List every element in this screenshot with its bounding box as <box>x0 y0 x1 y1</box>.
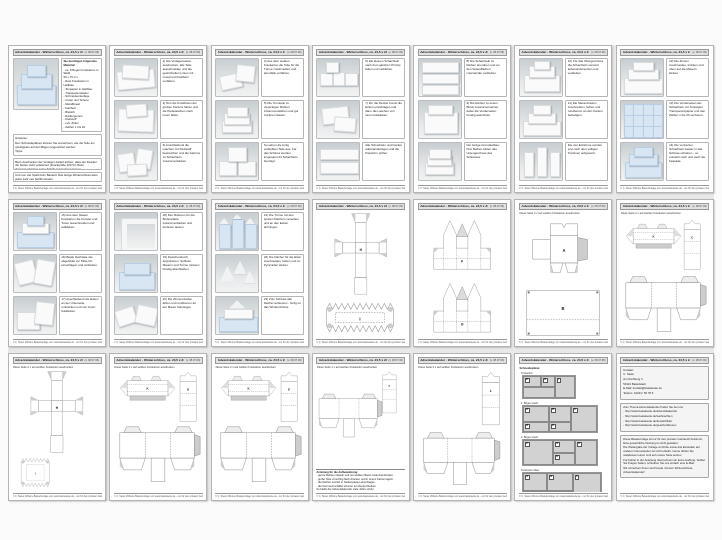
footer-left: © C. Steier 2006 <box>215 187 231 190</box>
page-header: Adventskalender - Winterschloss, ca. 24,… <box>316 49 405 57</box>
photo-towers <box>519 142 563 182</box>
page-header: Adventskalender - Winterschloss, ca. 24,… <box>13 357 102 365</box>
page-21: Adventskalender - Winterschloss, ca. 24,… <box>616 353 714 501</box>
piece-letter: D <box>525 424 530 429</box>
page-header: Adventskalender - Winterschloss, ca. 24,… <box>215 203 304 211</box>
piece-letter: D <box>555 455 560 460</box>
footer-left: © C. Steier 2006 <box>620 495 636 498</box>
step-row: 10) Für das Obergeschoss die Schachteln … <box>519 58 608 98</box>
paper-piece <box>127 164 148 177</box>
page-title: Adventskalender - Winterschloss, ca. 24,… <box>623 50 691 54</box>
page-header-right: (v. 08.07.06) <box>389 205 403 208</box>
page-body: 12) Die Zinnen zuschneiden, knicken und … <box>620 58 709 184</box>
step-text: 6) Die kleinen Schachteln nach dem gleic… <box>362 58 405 98</box>
paper-piece <box>232 214 242 219</box>
template-drawing: H I <box>13 370 102 491</box>
footer-left: © C. Steier 2006 <box>13 495 29 498</box>
step-row: 21) Die Türme mit den spitzen Dächern ve… <box>215 212 304 252</box>
step-text: Die vier Ecktürme werden erst nach dem v… <box>565 142 608 182</box>
footer-left: © C. Steier 2006 <box>519 495 535 498</box>
step-row: 23) Zum Schluss alle Dächer aufsetzen - … <box>215 296 304 336</box>
step-row: Die vier Ecktürme werden erst nach dem v… <box>519 142 608 182</box>
cutting-plan-piece: B <box>549 406 571 422</box>
footer-right: eine Bastelvorlage von www.bastelseite.d… <box>231 187 304 190</box>
page-body: 6) Die kleinen Schachteln nach dem gleic… <box>316 58 405 184</box>
step-row: Alle Schachteln und Deckel aufeinanderle… <box>316 142 405 182</box>
photo-roofs <box>215 254 259 294</box>
page-title: Adventskalender - Winterschloss, ca. 24,… <box>521 50 589 54</box>
cutting-plan-piece: C <box>523 440 553 465</box>
page-footer: © C. Steier 2006eine Bastelvorlage von w… <box>215 493 304 498</box>
net-cross: H <box>30 372 82 453</box>
page-4: Adventskalender - Winterschloss, ca. 24,… <box>312 45 410 193</box>
step-row: 4) Aus dem weißen Fotokarton die Teile f… <box>215 58 304 98</box>
paper-piece <box>550 152 560 177</box>
step-text: 19) Zwischendurch anprobieren: Schloss, … <box>160 254 203 294</box>
step-text: 20) Die Zinnenstreifen falzen und rundhe… <box>160 296 203 336</box>
photo-stack2 <box>215 142 259 182</box>
storage-note: Anleitung für die Aufbewahrung:- ganze R… <box>316 469 405 492</box>
page-footer: © C. Steier 2006eine Bastelvorlage von w… <box>13 339 102 344</box>
paper-piece <box>238 161 256 177</box>
page-title: Adventskalender - Winterschloss, ca. 24,… <box>623 358 691 362</box>
step-row: Der fertige Grundaufbau: Drei Reihen bil… <box>418 142 507 182</box>
print-instruction: Diese Seite 2 x auf weißen Fotokarton au… <box>216 366 305 369</box>
cutting-plan-piece: E <box>549 422 571 432</box>
footer-right: eine Bastelvorlage von www.bastelseite.d… <box>535 187 608 190</box>
piece-letter: F <box>575 475 580 480</box>
page-body: 21) Die Türme mit den spitzen Dächern ve… <box>215 212 304 338</box>
page-footer: © C. Steier 2006eine Bastelvorlage von w… <box>114 493 203 498</box>
page-title: Adventskalender - Winterschloss, ca. 24,… <box>319 358 387 362</box>
paper-box-blue <box>643 104 653 115</box>
photo-flat <box>114 58 158 98</box>
page-header: Adventskalender - Winterschloss, ca. 24,… <box>620 49 709 57</box>
net-letter: F <box>461 259 463 263</box>
page-footer: © C. Steier 2006eine Bastelvorlage von w… <box>620 339 709 344</box>
net-roofstrip: K <box>221 376 276 400</box>
page-header-right: (v. 08.07.06) <box>287 205 301 208</box>
page-header: Adventskalender - Winterschloss, ca. 24,… <box>418 203 507 211</box>
footer-left: © C. Steier 2006 <box>519 341 535 344</box>
footer-left: © C. Steier 2006 <box>114 187 130 190</box>
paper-piece <box>33 258 56 286</box>
photo-boxes <box>316 58 360 98</box>
paper-piece <box>320 149 359 160</box>
page-body: Diese Seite 2 x auf weißen Fotokarton au… <box>620 212 709 338</box>
paper-piece <box>633 62 653 72</box>
paper-piece <box>537 147 547 177</box>
cutting-plan-group: 1. Bogen weiß:ABCDE <box>519 402 608 434</box>
page-header-right: (v. 08.07.06) <box>287 359 301 362</box>
info-line: Kontakt: <box>623 369 706 373</box>
paper-piece <box>424 112 458 134</box>
sheet-outline: CGKD <box>522 439 598 466</box>
print-instruction: Diese Seite 2 x auf weißen Fotokarton au… <box>418 366 507 369</box>
paper-piece <box>326 62 339 73</box>
paper-piece <box>320 162 359 174</box>
step-text: 11) Die Mauerstreifen zuschneiden, falze… <box>565 100 608 140</box>
photo-castle-blue2 <box>13 212 57 252</box>
footer-left: © C. Steier 2006 <box>620 187 636 190</box>
step-row: 20) Die Zinnenstreifen falzen und rundhe… <box>114 296 203 336</box>
page-2: Adventskalender - Winterschloss, ca. 24,… <box>109 45 207 193</box>
page-footer: © C. Steier 2006eine Bastelvorlage von w… <box>316 339 405 344</box>
paper-piece <box>345 73 358 86</box>
page-title: Adventskalender - Winterschloss, ca. 24,… <box>319 204 387 208</box>
footer-right: eine Bastelvorlage von www.bastelseite.d… <box>434 187 507 190</box>
step-row: 2) Nun die Knicklinien der großen Karton… <box>114 100 203 140</box>
photo-battlements <box>114 296 158 336</box>
photo-rows2 <box>418 58 462 98</box>
page-footer: © C. Steier 2006eine Bastelvorlage von w… <box>215 339 304 344</box>
step-row: So sehen die fertig verklebten Teile aus… <box>215 142 304 182</box>
footer-right: eine Bastelvorlage von www.bastelseite.d… <box>333 341 406 344</box>
page-body: Sie benötigen folgendes Material:- ca. 8… <box>13 58 102 184</box>
page-body: 4) Aus dem weißen Fotokarton die Teile f… <box>215 58 304 184</box>
template-drawing: A B <box>519 216 608 337</box>
paper-piece <box>219 218 228 224</box>
footer-right: eine Bastelvorlage von www.bastelseite.d… <box>130 341 203 344</box>
footer-right: eine Bastelvorlage von www.bastelseite.d… <box>333 187 406 190</box>
paper-piece <box>228 147 247 162</box>
footer-right: eine Bastelvorlage von www.bastelseite.d… <box>637 341 710 344</box>
paper-box-blue <box>643 115 653 126</box>
page-footer: © C. Steier 2006eine Bastelvorlage von w… <box>620 493 709 498</box>
footer-right: eine Bastelvorlage von www.bastelseite.d… <box>535 495 608 498</box>
page-header-right: (v. 08.07.06) <box>692 359 706 362</box>
cutting-plan-piece: C <box>571 406 597 432</box>
footer-left: © C. Steier 2006 <box>316 187 332 190</box>
page-header: Adventskalender - Winterschloss, ca. 24,… <box>519 49 608 57</box>
photo-flat2 <box>114 100 158 140</box>
cutting-plan-piece <box>523 387 555 398</box>
page-footer: © C. Steier 2006eine Bastelvorlage von w… <box>418 493 507 498</box>
step-text: 5) Die Turmteile zu viereckigen Röhren z… <box>261 100 304 140</box>
page-header: Adventskalender - Winterschloss, ca. 24,… <box>620 203 709 211</box>
page-body: Diese Seite 2 x auf weißen Fotokarton au… <box>13 366 102 492</box>
net-roofstrip: K <box>626 224 681 248</box>
paper-piece <box>27 65 47 77</box>
step-text: 8) Die Schachteln zu Reihen anordnen und… <box>464 58 507 98</box>
paper-piece <box>534 61 549 70</box>
net-tallbox: E <box>281 372 297 421</box>
net-letter: H <box>360 248 363 252</box>
paper-box-blue <box>653 115 663 126</box>
paper-piece <box>524 152 534 177</box>
print-instruction: Diese Seite 2 x auf weißen Fotokarton au… <box>13 366 102 369</box>
page-footer: © C. Steier 2006eine Bastelvorlage von w… <box>215 185 304 190</box>
page-title: Adventskalender - Winterschloss, ca. 24,… <box>218 50 286 54</box>
piece-letter: I <box>557 378 561 383</box>
page-title: Adventskalender - Winterschloss, ca. 24,… <box>319 50 387 54</box>
net-zigsquare: I <box>21 459 49 487</box>
piece-letter: A <box>525 475 530 480</box>
footer-left: © C. Steier 2006 <box>418 341 434 344</box>
step-text: 17) Anschließend die Ecken an der Unters… <box>59 296 102 336</box>
step-text: 15) Aus dem blauen Fotokarton die Fenste… <box>59 212 102 252</box>
net-widebox <box>423 433 499 485</box>
photo-block2 <box>519 58 563 98</box>
step-text: 10) Für das Obergeschoss die Schachteln … <box>565 58 608 98</box>
piece-letter: E <box>551 424 556 429</box>
photo-castle-white <box>519 100 563 140</box>
page-title: Adventskalender - Winterschloss, ca. 24,… <box>623 204 691 208</box>
paper-piece <box>333 72 346 87</box>
page-footer: © C. Steier 2006eine Bastelvorlage von w… <box>519 339 608 344</box>
paper-piece <box>124 263 150 275</box>
page-9: Adventskalender - Winterschloss, ca. 24,… <box>109 199 207 347</box>
page-header: Adventskalender - Winterschloss, ca. 24,… <box>13 203 102 211</box>
piece-letter: A <box>525 408 530 413</box>
net-zigrect: I <box>327 303 394 331</box>
piece-letter: K <box>577 442 582 447</box>
page-header: Adventskalender - Winterschloss, ca. 24,… <box>114 49 203 57</box>
page-title: Adventskalender - Winterschloss, ca. 24,… <box>420 204 488 208</box>
step-text: 12) Die Zinnen zuschneiden, knicken und … <box>666 58 709 98</box>
page-header-right: (v. 08.07.06) <box>490 205 504 208</box>
step-row: 14) Die verzierten Schachteln wieder in … <box>620 142 709 182</box>
page-body: 8) Die Schachteln zu Reihen anordnen und… <box>418 58 507 184</box>
page-header: Adventskalender - Winterschloss, ca. 24,… <box>215 357 304 365</box>
footer-left: © C. Steier 2006 <box>620 341 636 344</box>
paper-piece <box>245 218 254 224</box>
step-row: 13) Die Vorderseiten der Schachteln mit … <box>620 100 709 140</box>
net-letter: H <box>55 406 58 410</box>
step-text: 23) Zum Schluss alle Dächer aufsetzen - … <box>261 296 304 336</box>
photo-castle-blue <box>620 142 664 182</box>
page-header-right: (v. 08.07.06) <box>85 205 99 208</box>
cutting-plan-piece: F <box>573 473 601 491</box>
paper-piece <box>122 219 158 252</box>
footer-right: eine Bastelvorlage von www.bastelseite.d… <box>231 495 304 498</box>
piece-letter: B <box>549 475 554 480</box>
paper-piece <box>634 147 653 157</box>
page-header: Adventskalender - Winterschloss, ca. 24,… <box>418 49 507 57</box>
footer-left: © C. Steier 2006 <box>215 341 231 344</box>
photo-stack <box>215 100 259 140</box>
template-drawing: F <box>316 370 405 467</box>
step-row: 12) Die Zinnen zuschneiden, knicken und … <box>620 58 709 98</box>
step-row: 5) Die Turmteile zu viereckigen Röhren z… <box>215 100 304 140</box>
footer-left: © C. Steier 2006 <box>418 187 434 190</box>
page-body: F G <box>418 212 507 338</box>
contact-sheet: Adventskalender - Winterschloss, ca. 24,… <box>0 0 722 540</box>
template-drawing: K C <box>620 216 709 337</box>
step-row: 11) Die Mauerstreifen zuschneiden, falze… <box>519 100 608 140</box>
step-text: 1) Die Vorlagenseiten ausdrucken, alle T… <box>160 58 203 98</box>
piece-letter: H <box>543 378 548 383</box>
footer-left: © C. Steier 2006 <box>215 495 231 498</box>
intro-line: Und nun viel Spaß beim Basteln! Das fert… <box>15 174 99 181</box>
paper-piece <box>122 64 150 79</box>
step-row: 16) Beide Dachteile wie abgebildet zur M… <box>13 254 102 294</box>
net-letter: I <box>360 316 361 321</box>
intro-section: Beim Ausdrucken der Vorlagen darauf acht… <box>13 158 102 170</box>
step-row: 15) Aus dem blauen Fotokarton die Fenste… <box>13 212 102 252</box>
paper-piece <box>429 149 450 159</box>
photo-curved <box>13 254 57 294</box>
footer-right: eine Bastelvorlage von www.bastelseite.d… <box>29 495 102 498</box>
paper-piece <box>224 309 253 319</box>
footer-right: eine Bastelvorlage von www.bastelseite.d… <box>434 495 507 498</box>
page-header-right: (v. 08.07.06) <box>186 205 200 208</box>
info-line: Die Weitergabe der Vorlage an Dritte sow… <box>623 446 706 457</box>
cutting-plan-piece: K <box>575 440 597 465</box>
photo-pieces2 <box>215 58 259 98</box>
info-line: Für Fehler in der Anleitung übernehmen w… <box>623 459 706 467</box>
net-tallbox: L <box>482 372 499 424</box>
step-text: 16) Beide Dachteile wie abgebildet zur M… <box>59 254 102 294</box>
paper-piece <box>533 105 552 115</box>
step-text: 18) Den Rahmen für die Bodenplatte zusam… <box>160 212 203 252</box>
page-body: H I <box>316 212 405 338</box>
page-header-right: (v. 08.07.06) <box>591 51 605 54</box>
paper-piece <box>334 116 357 132</box>
page-19: Adventskalender - Winterschloss, ca. 24,… <box>413 353 511 501</box>
net-widebox <box>120 427 200 482</box>
page-body: 10) Für das Obergeschoss die Schachteln … <box>519 58 608 184</box>
page-footer: © C. Steier 2006eine Bastelvorlage von w… <box>418 185 507 190</box>
page-grid: Adventskalender - Winterschloss, ca. 24,… <box>8 45 714 501</box>
page-body: Diese Seite 1 x auf weißen Fotokarton au… <box>316 366 405 492</box>
cutting-plan-piece: E <box>523 376 541 387</box>
page-header: Adventskalender - Winterschloss, ca. 24,… <box>114 203 203 211</box>
sheet-outline: ABFLD <box>522 472 602 491</box>
page-footer: © C. Steier 2006eine Bastelvorlage von w… <box>13 185 102 190</box>
photo-castle-blue <box>13 58 59 110</box>
page-title: Adventskalender - Winterschloss, ca. 24,… <box>15 358 83 362</box>
photo-frame <box>114 212 158 252</box>
step-text: Alle Schachteln und Deckel aufeinanderle… <box>362 142 405 182</box>
page-footer: © C. Steier 2006eine Bastelvorlage von w… <box>114 185 203 190</box>
step-text: 7) Für die Deckel zuerst die Ecken einsc… <box>362 100 405 140</box>
page-header: Adventskalender - Winterschloss, ca. 24,… <box>519 357 608 365</box>
page-footer: © C. Steier 2006eine Bastelvorlage von w… <box>519 185 608 190</box>
photo-blue-grid <box>620 100 664 140</box>
net-letter: A <box>562 248 565 253</box>
footer-right: eine Bastelvorlage von www.bastelseite.d… <box>29 187 102 190</box>
sheet-outline: ABCDE <box>522 405 598 433</box>
page-header-right: (v. 08.07.06) <box>85 359 99 362</box>
paper-piece <box>219 224 230 249</box>
template-drawing: K E <box>215 370 304 491</box>
page-16: Adventskalender - Winterschloss, ca. 24,… <box>109 353 207 501</box>
page-body: 18) Den Rahmen für die Bodenplatte zusam… <box>114 212 203 338</box>
page-footer: © C. Steier 2006eine Bastelvorlage von w… <box>316 185 405 190</box>
template-drawing: K D <box>114 370 203 491</box>
page-header: Adventskalender - Winterschloss, ca. 24,… <box>215 49 304 57</box>
page-header-right: (v. 08.07.06) <box>186 51 200 54</box>
info-box: Kontakt:C. SteierAm Kirchberg 354321 Bas… <box>620 366 709 400</box>
footer-right: eine Bastelvorlage von www.bastelseite.d… <box>130 187 203 190</box>
page-header: Adventskalender - Winterschloss, ca. 24,… <box>316 203 405 211</box>
step-text: 14) Die verzierten Schachteln wieder in … <box>666 142 709 182</box>
info-line: Telefon: 01234 / 56 78 9 <box>623 392 706 396</box>
step-text: 13) Die Vorderseiten der Schachteln mit … <box>666 100 709 140</box>
page-12: Adventskalender - Winterschloss, ca. 24,… <box>413 199 511 347</box>
page-body: Kontakt:C. SteierAm Kirchberg 354321 Bas… <box>620 366 709 492</box>
template-drawing: L <box>418 370 507 491</box>
page-footer: © C. Steier 2006eine Bastelvorlage von w… <box>418 339 507 344</box>
note-line: So bleibt der Adventskalender viele Jahr… <box>316 488 405 492</box>
page-header-right: (v. 08.07.06) <box>186 359 200 362</box>
step-row: 9) Die Reihen zu einem Block zusammenset… <box>418 100 507 140</box>
net-widebox <box>319 394 382 437</box>
footer-right: eine Bastelvorlage von www.bastelseite.d… <box>434 341 507 344</box>
net-tallbox: C <box>684 220 700 269</box>
cutting-plan-group: Tonkarton:EHI <box>519 372 608 400</box>
paper-piece <box>244 270 256 283</box>
cutting-plan-piece: G <box>553 440 575 453</box>
paper-piece <box>219 161 237 176</box>
footer-left: © C. Steier 2006 <box>519 187 535 190</box>
step-row: 22) Die Dächer für die Erker zuschneiden… <box>215 254 304 294</box>
page-header-right: (v. 08.07.06) <box>389 51 403 54</box>
net-widebox <box>221 427 301 482</box>
step-row: 19) Zwischendurch anprobieren: Schloss, … <box>114 254 203 294</box>
page-body: Diese Seite 4 x auf weißen Fotokarton au… <box>519 212 608 338</box>
note-line: - ganze Reihen stapeln und mit weißem Ba… <box>316 474 405 478</box>
paper-piece <box>33 301 54 326</box>
paper-piece <box>428 105 453 115</box>
info-line: Diese Bastelvorlage ist nur für den priv… <box>623 438 706 446</box>
cutting-plan-piece: D <box>523 422 549 432</box>
page-body: 15) Aus dem blauen Fotokarton die Fenste… <box>13 212 102 338</box>
page-13: Adventskalender - Winterschloss, ca. 24,… <box>514 199 612 347</box>
materials-list: Sie benötigen folgendes Material:- ca. 8… <box>61 58 102 133</box>
page-title: Adventskalender - Winterschloss, ca. 24,… <box>15 50 83 54</box>
page-header: Adventskalender - Winterschloss, ca. 24,… <box>114 357 203 365</box>
footer-right: eine Bastelvorlage von www.bastelseite.d… <box>333 495 406 498</box>
paper-piece <box>320 73 333 86</box>
paper-piece <box>229 300 246 308</box>
page-body: Diese Seite 2 x auf weißen Fotokarton au… <box>114 366 203 492</box>
paper-piece <box>134 304 158 327</box>
piece-letter: G <box>555 442 560 447</box>
page-header-right: (v. 08.07.06) <box>389 359 403 362</box>
print-instruction: Diese Seite 2 x auf weißen Fotokarton au… <box>621 212 710 215</box>
page-body: 1) Die Vorlagenseiten ausdrucken, alle T… <box>114 58 203 184</box>
material-item: - Zahlen 1 bis 24 <box>64 126 100 130</box>
paper-piece <box>232 219 244 248</box>
paper-piece <box>234 261 247 275</box>
piece-letter: B <box>551 408 556 413</box>
page-header-right: (v. 08.07.06) <box>591 205 605 208</box>
info-box: Zum Thema Adventskalender finden Sie bei… <box>620 403 709 432</box>
page-17: Adventskalender - Winterschloss, ca. 24,… <box>211 353 309 501</box>
page-title: Adventskalender - Winterschloss, ca. 24,… <box>15 204 83 208</box>
net-roofstrip: K <box>120 376 175 400</box>
page-title: Adventskalender - Winterschloss, ca. 24,… <box>218 358 286 362</box>
paper-piece <box>235 64 255 83</box>
info-box: Diese Bastelvorlage ist nur für den priv… <box>620 435 709 478</box>
footer-right: eine Bastelvorlage von www.bastelseite.d… <box>637 187 710 190</box>
piece-letter: C <box>573 408 578 413</box>
page-header-right: (v. 08.07.06) <box>692 51 706 54</box>
page-header: Adventskalender - Winterschloss, ca. 24,… <box>620 357 709 365</box>
page-title: Adventskalender - Winterschloss, ca. 24,… <box>116 358 184 362</box>
net-gable: F <box>433 220 490 269</box>
step-text: 3) Anschließend die Laschen mit Klebstof… <box>160 142 203 182</box>
print-instruction: Diese Seite 4 x auf weißen Fotokarton au… <box>519 212 608 215</box>
cutting-plan-piece: I <box>555 376 575 398</box>
paper-piece <box>27 216 44 226</box>
page-title: Adventskalender - Winterschloss, ca. 24,… <box>116 50 184 54</box>
print-instruction: Diese Seite 1 x auf weißen Fotokarton au… <box>317 366 406 369</box>
page-6: Adventskalender - Winterschloss, ca. 24,… <box>514 45 612 193</box>
cutting-plan-group: 2. Bogen weiß:CGKD <box>519 436 608 467</box>
